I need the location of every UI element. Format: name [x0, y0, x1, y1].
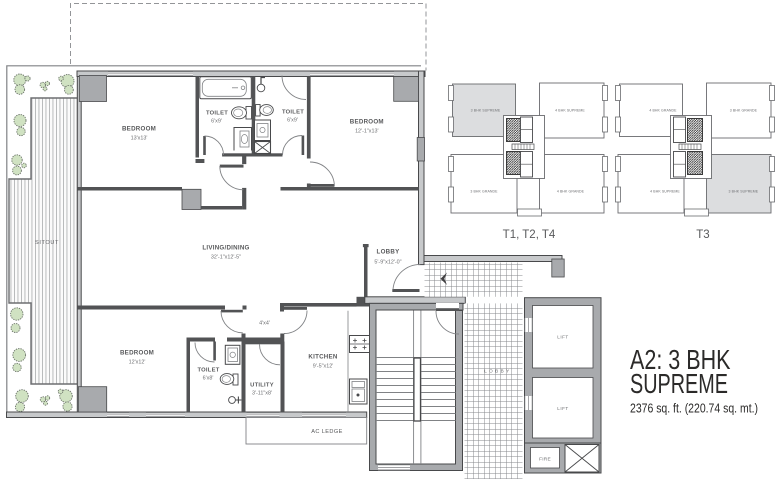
svg-text:T3: T3 [696, 229, 709, 241]
svg-text:4 BHK SUPREME: 4 BHK SUPREME [555, 109, 585, 113]
svg-text:9'-5"x12': 9'-5"x12' [313, 364, 333, 370]
svg-text:13'x13': 13'x13' [131, 136, 148, 142]
svg-text:12'x12': 12'x12' [129, 360, 146, 366]
svg-text:FIRE: FIRE [539, 457, 551, 463]
svg-text:4 BHK GRANDE: 4 BHK GRANDE [557, 190, 585, 194]
svg-text:BEDROOM: BEDROOM [120, 350, 154, 357]
svg-text:TOILET: TOILET [282, 110, 304, 116]
svg-text:UTILITY: UTILITY [250, 383, 274, 389]
svg-text:SUPREME: SUPREME [630, 368, 728, 399]
svg-text:5'-9"x12'-0": 5'-9"x12'-0" [374, 260, 401, 266]
svg-text:3 BHK GRANDE: 3 BHK GRANDE [470, 190, 498, 194]
svg-text:TOILET: TOILET [206, 111, 228, 117]
svg-text:6'x9': 6'x9' [287, 118, 298, 124]
svg-text:L O B B Y: L O B B Y [484, 369, 510, 374]
svg-text:LIFT: LIFT [557, 406, 568, 411]
svg-text:KITCHEN: KITCHEN [308, 354, 338, 361]
svg-text:2376 sq. ft. (220.74 sq. mt.): 2376 sq. ft. (220.74 sq. mt.) [630, 401, 758, 416]
svg-text:32'-1"x12'-5": 32'-1"x12'-5" [211, 255, 241, 261]
svg-text:4 BHK GRANDE: 4 BHK GRANDE [649, 109, 677, 113]
svg-text:12'-1"x13': 12'-1"x13' [355, 129, 378, 135]
svg-text:LIVING/DINING: LIVING/DINING [202, 245, 249, 252]
svg-text:3'-11"x8': 3'-11"x8' [252, 391, 272, 397]
svg-text:LIFT: LIFT [557, 335, 568, 340]
svg-text:TOILET: TOILET [197, 368, 219, 374]
svg-text:3 BHK SUPREME: 3 BHK SUPREME [729, 190, 759, 194]
svg-text:BEDROOM: BEDROOM [350, 119, 384, 126]
svg-text:3 BHK GRANDE: 3 BHK GRANDE [730, 109, 758, 113]
svg-text:SITOUT: SITOUT [35, 240, 59, 246]
svg-text:6'x8': 6'x8' [203, 376, 214, 382]
svg-text:4 BHK SUPREME: 4 BHK SUPREME [650, 190, 680, 194]
svg-text:AC LEDGE: AC LEDGE [311, 429, 343, 435]
svg-text:4'x4': 4'x4' [259, 321, 270, 327]
svg-text:T1, T2, T4: T1, T2, T4 [503, 229, 556, 241]
svg-text:LOBBY: LOBBY [377, 249, 401, 256]
svg-text:6'x9': 6'x9' [211, 119, 222, 125]
svg-text:3 BHK SUPREME: 3 BHK SUPREME [471, 109, 501, 113]
svg-text:BEDROOM: BEDROOM [122, 126, 156, 133]
